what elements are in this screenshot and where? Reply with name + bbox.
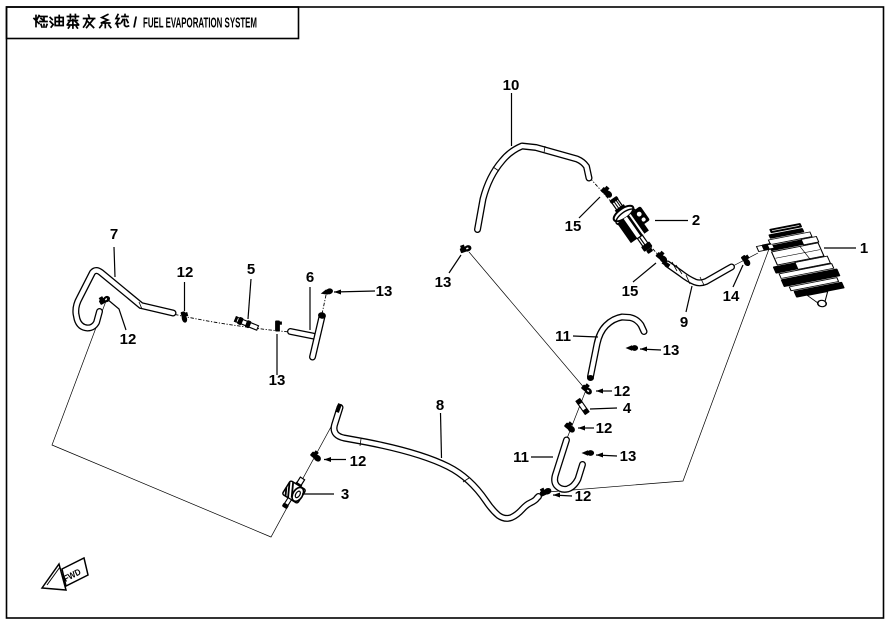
svg-text:11: 11: [555, 328, 571, 345]
svg-text:12: 12: [177, 264, 194, 281]
svg-text:11: 11: [513, 449, 529, 466]
svg-text:10: 10: [503, 77, 520, 94]
svg-text:12: 12: [614, 383, 631, 400]
svg-text:13: 13: [376, 283, 393, 300]
svg-text:15: 15: [565, 218, 582, 235]
svg-text:8: 8: [436, 397, 444, 414]
svg-text:12: 12: [120, 331, 137, 348]
svg-text:1: 1: [860, 240, 868, 257]
svg-text:12: 12: [596, 420, 613, 437]
svg-text:2: 2: [692, 212, 700, 229]
svg-text:12: 12: [350, 453, 367, 470]
svg-text:9: 9: [680, 314, 688, 331]
svg-text:6: 6: [306, 269, 314, 286]
svg-text:7: 7: [110, 226, 118, 243]
svg-text:13: 13: [663, 342, 680, 359]
svg-text:13: 13: [435, 274, 452, 291]
svg-text:12: 12: [575, 488, 592, 505]
svg-text:15: 15: [622, 283, 639, 300]
svg-text:14: 14: [723, 288, 740, 305]
svg-text:5: 5: [247, 261, 255, 278]
svg-text:3: 3: [341, 486, 349, 503]
svg-text:13: 13: [620, 448, 637, 465]
svg-text:4: 4: [623, 400, 632, 417]
svg-text:FUEL EVAPORATION SYSTEM: FUEL EVAPORATION SYSTEM: [143, 15, 257, 32]
